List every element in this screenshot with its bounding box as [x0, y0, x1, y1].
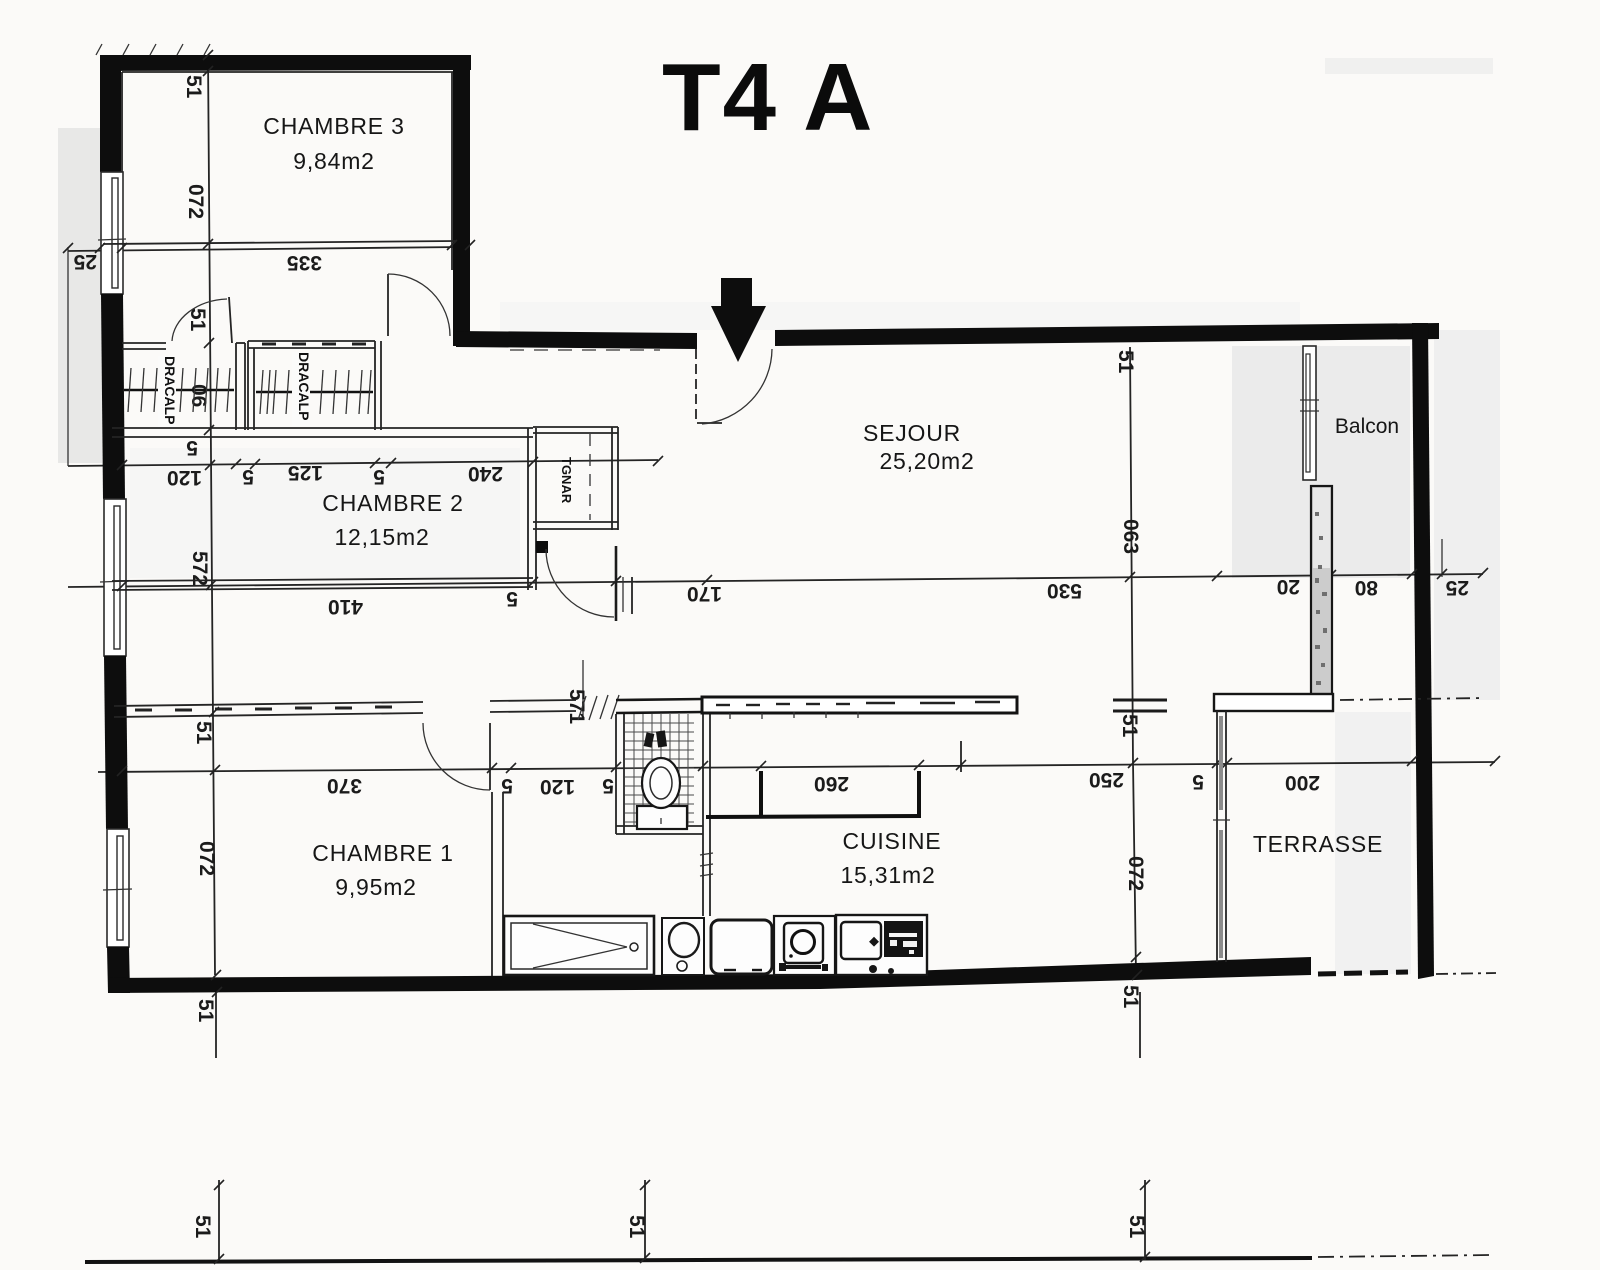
svg-text:335: 335 [287, 251, 322, 274]
svg-text:571: 571 [565, 689, 588, 724]
svg-text:CHAMBRE 1: CHAMBRE 1 [312, 840, 453, 866]
svg-text:51: 51 [625, 1215, 648, 1239]
svg-text:12,15m2: 12,15m2 [334, 524, 429, 550]
svg-text:51: 51 [1118, 714, 1141, 738]
svg-text:072: 072 [1124, 856, 1147, 891]
svg-text:410: 410 [328, 595, 363, 618]
svg-text:5: 5 [242, 465, 254, 488]
svg-text:51: 51 [192, 721, 215, 745]
svg-text:TGNAR: TGNAR [559, 457, 574, 504]
svg-text:20: 20 [1277, 575, 1300, 598]
svg-text:Balcon: Balcon [1335, 415, 1399, 438]
svg-text:170: 170 [687, 582, 722, 605]
svg-text:5: 5 [506, 587, 518, 610]
svg-text:15,31m2: 15,31m2 [840, 862, 935, 888]
svg-text:51: 51 [1125, 1215, 1148, 1239]
svg-text:80: 80 [1355, 576, 1378, 599]
svg-text:TERRASSE: TERRASSE [1253, 831, 1383, 857]
svg-text:063: 063 [1119, 519, 1142, 554]
svg-text:5: 5 [602, 774, 614, 797]
svg-text:DRACALP: DRACALP [162, 356, 178, 424]
svg-text:5: 5 [186, 436, 198, 459]
svg-text:CHAMBRE 2: CHAMBRE 2 [322, 490, 463, 516]
svg-text:T4 A: T4 A [662, 44, 874, 151]
svg-text:CUISINE: CUISINE [843, 828, 942, 854]
svg-text:072: 072 [195, 841, 218, 876]
svg-text:9,84m2: 9,84m2 [293, 148, 375, 174]
svg-text:51: 51 [191, 1215, 214, 1239]
svg-text:260: 260 [814, 772, 849, 795]
svg-text:DRACALP: DRACALP [296, 352, 312, 420]
svg-text:5: 5 [373, 465, 385, 488]
svg-text:125: 125 [288, 461, 323, 484]
svg-text:25: 25 [1445, 576, 1469, 599]
svg-text:51: 51 [1114, 350, 1137, 374]
svg-text:9,95m2: 9,95m2 [335, 874, 417, 900]
svg-text:25: 25 [73, 250, 97, 273]
svg-text:240: 240 [468, 462, 503, 485]
svg-text:530: 530 [1047, 579, 1082, 602]
svg-text:SEJOUR: SEJOUR [863, 420, 961, 446]
svg-text:5: 5 [1192, 770, 1204, 793]
svg-text:200: 200 [1285, 771, 1320, 794]
svg-text:25,20m2: 25,20m2 [879, 448, 974, 474]
svg-text:51: 51 [194, 999, 217, 1023]
svg-text:120: 120 [540, 775, 575, 798]
svg-text:072: 072 [184, 184, 207, 219]
svg-text:51: 51 [182, 75, 205, 99]
svg-text:CHAMBRE 3: CHAMBRE 3 [263, 113, 404, 139]
svg-text:370: 370 [327, 774, 362, 797]
svg-text:120: 120 [167, 466, 202, 489]
svg-text:250: 250 [1089, 768, 1124, 791]
svg-text:51: 51 [1119, 985, 1142, 1009]
